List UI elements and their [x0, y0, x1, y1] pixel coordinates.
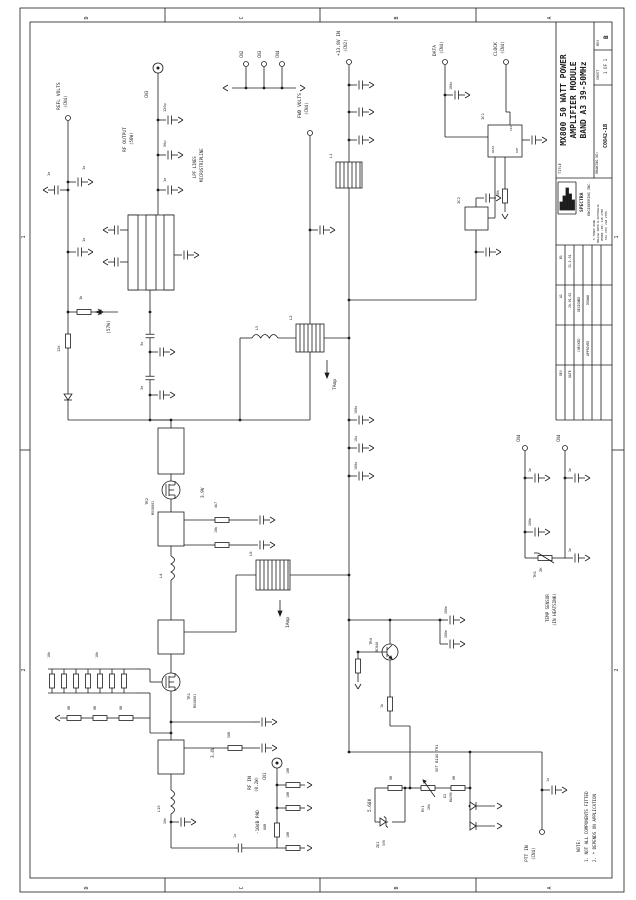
schematic-label: 1n	[163, 178, 167, 182]
schematic-label: 2. * DEPENDS ON APPLICATION	[592, 793, 597, 862]
stripline-icons	[128, 215, 174, 290]
schematic-label: TR2	[144, 498, 149, 505]
schematic-labels: MX800 50 WATT POWERAMPLIFIER MODULEBAND …	[21, 16, 620, 889]
schematic-label: 10R	[286, 767, 290, 774]
schematic-label: CN3	[144, 90, 149, 98]
schematic-label: TH1	[532, 570, 537, 578]
schematic-label: 1n	[47, 172, 51, 176]
schematic-label: 56R	[227, 731, 231, 738]
schematic-label: DATA	[491, 146, 495, 153]
schematic-label: 1n	[82, 166, 86, 170]
schematic-label: BAND A3 39-50MHz	[579, 61, 588, 138]
schematic-label: REV	[559, 370, 563, 376]
schematic-label: 4k7	[214, 502, 218, 508]
schematic-label: -10dB PAD	[255, 810, 261, 834]
schematic-label: REFL VOLTS	[56, 82, 62, 110]
schematic-label: CLK	[509, 125, 513, 131]
schematic-label: PTT IN	[524, 845, 530, 862]
schematic-label: (57W)	[106, 320, 112, 334]
schematic-label: BAV99	[449, 792, 453, 802]
schematic-label: SHEET	[596, 70, 600, 80]
schematic-label: 10R	[286, 791, 290, 798]
block-icons	[158, 125, 522, 774]
schematic-label: 100n	[354, 462, 358, 470]
schematic-label: CN3	[257, 50, 262, 58]
schematic-label: TR1	[186, 692, 191, 700]
schematic-label: 100n	[528, 518, 532, 526]
schematic-label: 2	[614, 668, 620, 671]
schematic-label: A	[547, 16, 553, 19]
annotation-arrows	[96, 310, 329, 616]
schematic-label: CN1	[262, 772, 267, 780]
schematic-label: 5V6	[382, 840, 386, 846]
schematic-label: 1k	[79, 295, 83, 300]
schematic-label: 10k	[214, 527, 218, 533]
schematic-label: FWD VOLTS	[297, 93, 303, 118]
schematic-label: MICROSTRIPLINE	[199, 148, 204, 182]
schematic-label: 1	[21, 235, 27, 238]
schematic-label: DRAWN	[586, 295, 590, 305]
schematic-label: CN4	[556, 434, 561, 442]
schematic-label: 1n	[528, 468, 532, 472]
schematic-label: (0.2W)	[254, 777, 259, 792]
schematic-label: 1Amp	[285, 617, 291, 628]
schematic-label: 3n	[140, 342, 144, 346]
schematic-label: CN4	[275, 50, 280, 58]
schematic-label: MOS8001	[193, 694, 197, 708]
schematic-label: B	[603, 35, 610, 39]
schematic-label: NOTE:	[576, 839, 581, 852]
schematic-label: 100n	[354, 406, 358, 414]
schematic-label: D	[84, 886, 90, 889]
bjt-icons	[382, 644, 398, 660]
schematic-label: 10u	[354, 436, 358, 442]
sheet-frame	[20, 8, 624, 892]
schematic-label: L5	[255, 326, 259, 330]
schematic-label: 10k	[95, 652, 99, 658]
schematic-label: 3.9V	[200, 487, 206, 498]
schematic-label: 1n	[568, 548, 572, 552]
schematic-label: SPECTRA	[579, 192, 585, 212]
schematic-label: LPF LINES	[192, 156, 197, 178]
schematic-label: C	[239, 886, 245, 889]
schematic-label: C	[239, 16, 245, 19]
schematic-label: D2	[443, 794, 447, 798]
junction-dots	[67, 84, 567, 824]
schematic-label: (CN4)	[531, 847, 536, 860]
schematic-label: 100n	[444, 630, 448, 638]
schematic-label: 120p	[163, 103, 167, 112]
schematic-label: 3n	[140, 386, 144, 390]
schematic-label: IC2	[456, 197, 461, 204]
schematic-label: 5.68V	[367, 798, 373, 812]
schematic-label: 0R	[93, 705, 97, 710]
schematic-label: 10k	[47, 652, 51, 658]
schematic-label: 1n	[233, 834, 237, 838]
schematic-label: BC846	[375, 642, 379, 652]
schematic-label: CHECKED	[577, 338, 581, 352]
schematic-label: 10k	[496, 190, 500, 196]
schematic-label: 12k	[57, 345, 61, 352]
schematic-label: (CN4)	[304, 102, 309, 115]
schematic-label: TITLE	[558, 163, 562, 174]
schematic-label: L6	[248, 551, 253, 556]
schematic-label: (50W)	[129, 132, 134, 145]
schematic-label: 0R	[452, 775, 456, 780]
schematic-label: (CN4)	[63, 95, 68, 108]
schematic-label: 7Amp	[332, 379, 338, 390]
schematic-label: D	[84, 16, 90, 19]
schematic-label: 100n	[444, 606, 448, 614]
schematic-label: L1	[328, 153, 333, 158]
schematic-label: AMPLIFIER MODULE	[569, 61, 578, 138]
schematic-label: FAX (09) 248 2706	[604, 211, 608, 240]
schematic-label: APPROVED	[586, 341, 590, 356]
schematic-label: 1k	[380, 704, 384, 708]
schematic-label: B1	[559, 255, 563, 259]
schematic-label: 1n	[568, 468, 572, 472]
schematic-label: 68R	[263, 823, 267, 830]
schematic-label: RF OUTPUT	[122, 127, 128, 152]
schematic-label: 56p	[163, 141, 167, 148]
schematic-label: ENGINEERING INC.	[587, 181, 591, 216]
schematic-label: DATE	[568, 370, 572, 378]
schematic-label: DRAWING NO:	[595, 152, 599, 174]
schematic-label: 31-1-01	[568, 254, 572, 268]
schematic-label: 2K	[538, 567, 543, 572]
schematic-label: OUT	[515, 147, 519, 153]
schematic-label: L2	[288, 315, 293, 320]
schematic-label: 100n	[449, 82, 453, 90]
schematic-label: (CN4)	[439, 41, 444, 54]
wires-layer	[48, 65, 565, 848]
schematic-page: MX800 50 WATT POWERAMPLIFIER MODULEBAND …	[0, 0, 636, 900]
schematic-label: MOS8001	[151, 501, 155, 515]
schematic-label: 3.4V	[210, 747, 216, 758]
ground-icons	[55, 85, 508, 851]
schematic-label: TR4	[368, 637, 373, 645]
schematic-label: (CN2)	[343, 39, 348, 52]
schematic-label: 1	[614, 235, 620, 238]
schematic-label: MX800 50 WATT POWER	[559, 54, 568, 146]
schematic-label: (CN4)	[500, 41, 505, 54]
schematic-canvas: MX800 50 WATT POWERAMPLIFIER MODULEBAND …	[0, 0, 636, 900]
schematic-label: 1 OF 1	[603, 58, 608, 74]
schematic-label: 10n	[163, 818, 167, 824]
schematic-label: 0R	[389, 775, 393, 780]
schematic-label: L10	[157, 806, 161, 813]
schematic-label: L4	[158, 573, 163, 578]
schematic-label: CLOCK	[493, 42, 499, 56]
schematic-label: 26-01-02	[568, 293, 572, 308]
schematic-label: 10R	[286, 831, 290, 838]
schematic-label: REV	[596, 40, 600, 46]
schematic-label: 0R	[67, 705, 71, 710]
schematic-label: IC1	[480, 112, 485, 120]
schematic-label: DATA	[432, 45, 438, 56]
schematic-label: CN2	[239, 50, 244, 58]
schematic-label: C0842-1B	[603, 124, 609, 148]
schematic-label: 1n	[546, 778, 550, 782]
schematic-label: B	[394, 16, 400, 19]
company-logo-icon	[560, 188, 575, 210]
schematic-label: TEMP SENSOR	[545, 594, 550, 622]
schematic-label: +13.8V IN	[336, 31, 342, 56]
schematic-label: RV1	[421, 806, 425, 813]
schematic-label: SET BIAS TR1	[434, 744, 439, 772]
schematic-label: B	[394, 886, 400, 889]
schematic-label: 1n	[82, 238, 86, 242]
transformer-icons	[256, 162, 362, 590]
diode-icons	[64, 394, 478, 830]
schematic-label: A1	[559, 294, 563, 298]
schematic-label: DESIGNED	[577, 297, 581, 312]
schematic-label: 10k	[427, 804, 431, 810]
schematic-label: A	[547, 886, 553, 889]
trimpot-icon	[416, 780, 440, 797]
schematic-label: RF IN	[247, 776, 253, 790]
schematic-label: ZD1	[376, 842, 380, 849]
capacitor-icons	[43, 81, 590, 853]
schematic-label: CN4	[516, 434, 521, 442]
schematic-label: 2	[21, 668, 27, 671]
schematic-label: (IN HEATSINK)	[552, 593, 557, 626]
schematic-label: 1. NOT ALL COMPONENTS FITTED	[584, 791, 589, 862]
schematic-label: 0R	[119, 705, 123, 710]
